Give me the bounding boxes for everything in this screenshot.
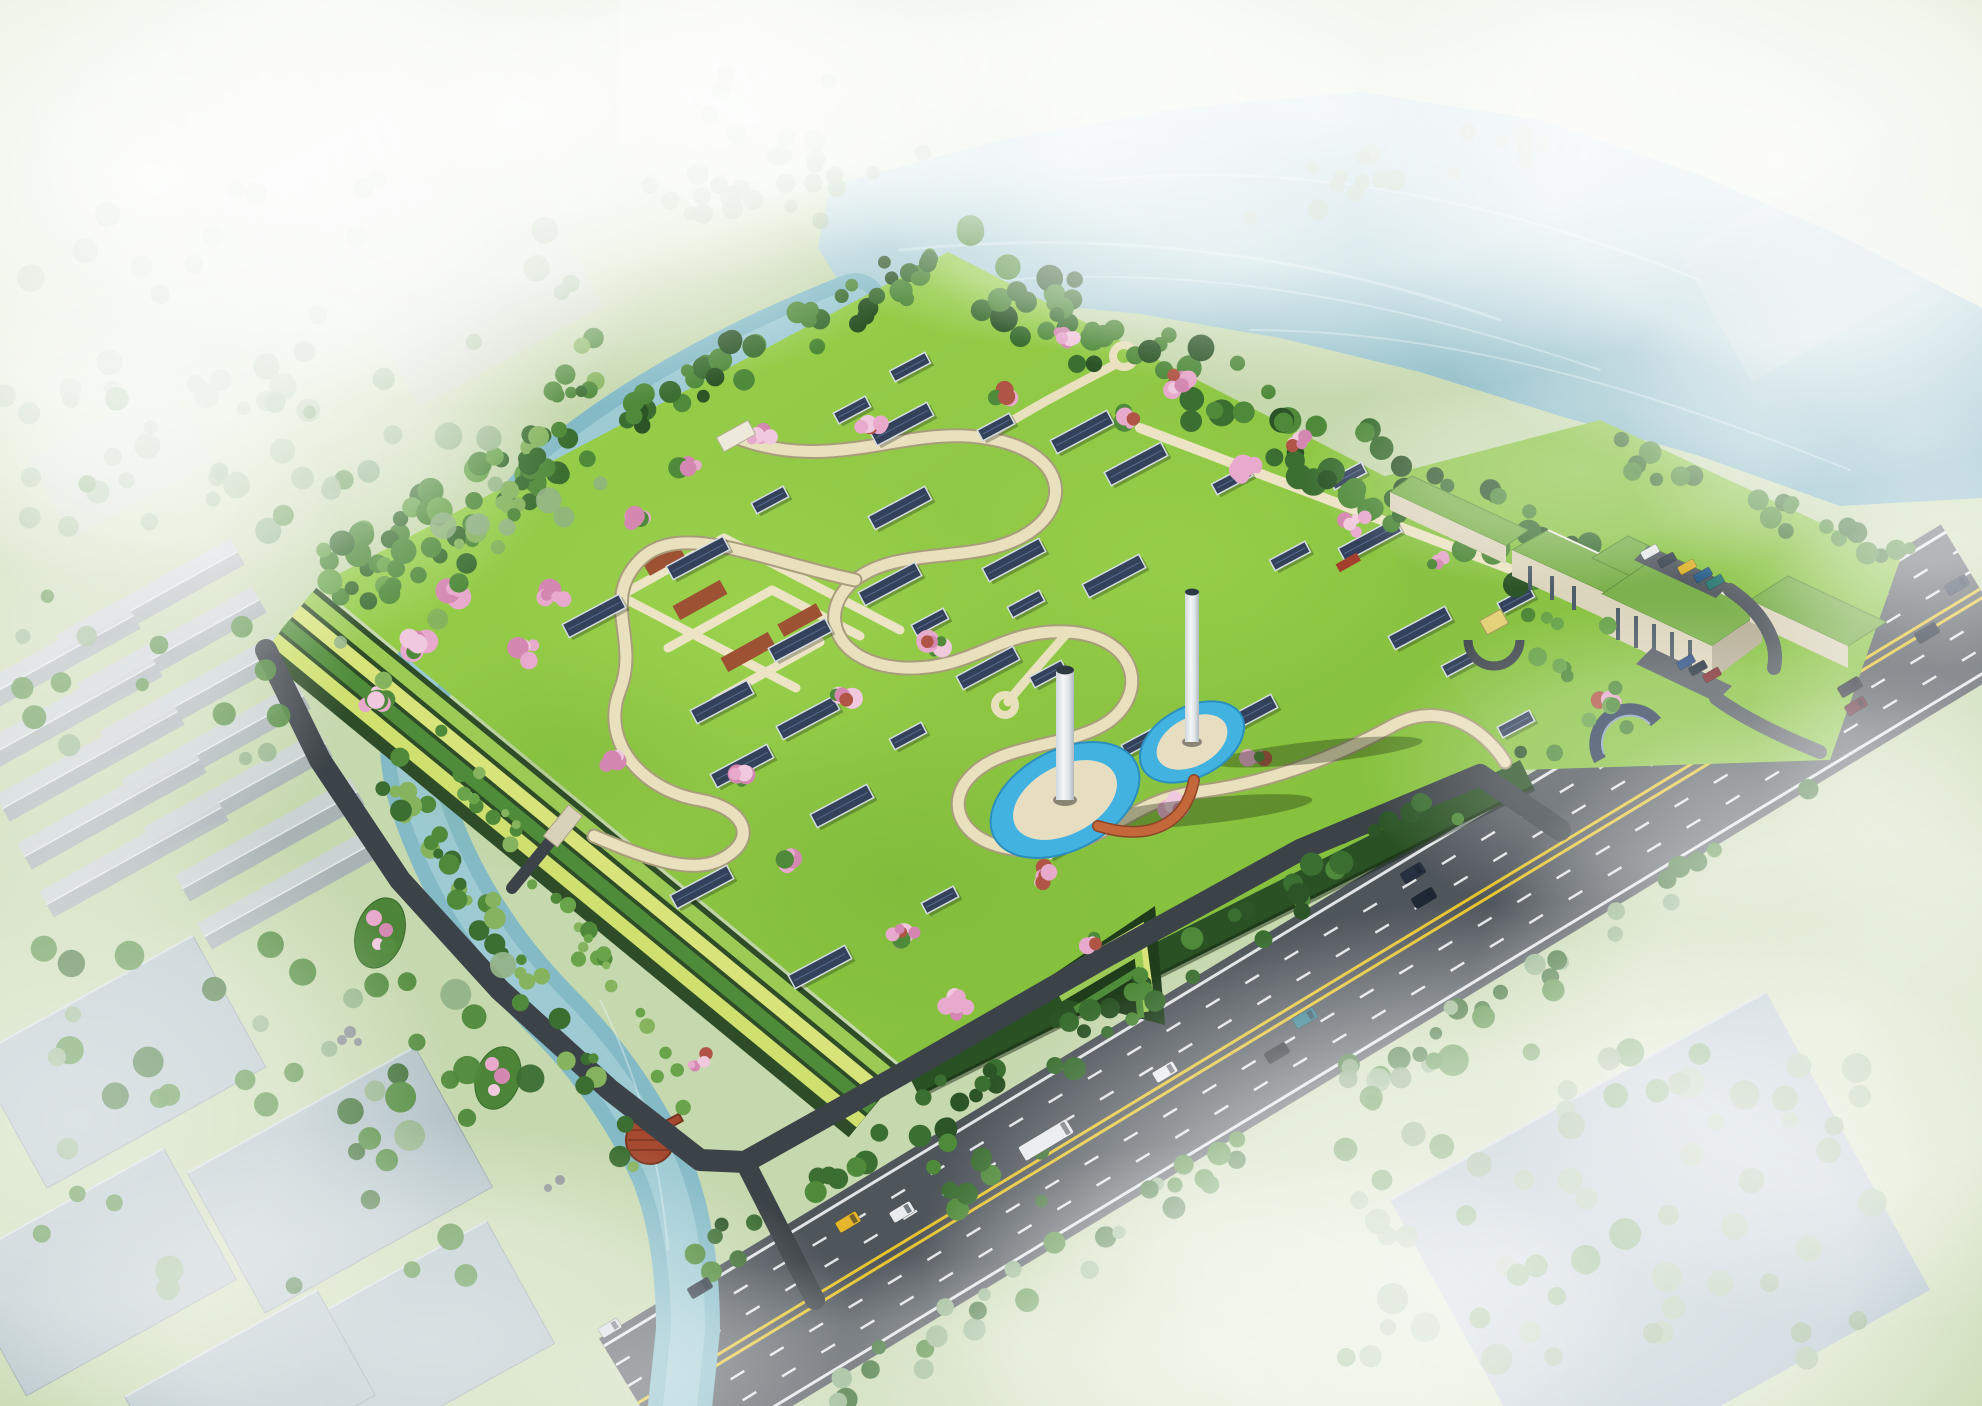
tree [512,994,529,1011]
tree [512,820,521,829]
tree [454,878,467,891]
tree [375,781,390,796]
tree [651,1070,664,1083]
island-blossom [494,1068,510,1084]
tree [527,879,537,889]
tree [435,725,447,737]
tree [440,979,471,1010]
blossom [1036,880,1045,889]
tree [571,952,586,967]
blossom [776,850,794,868]
scene-svg [0,0,1982,1406]
tree [1329,851,1353,875]
tree [847,1157,867,1177]
blossom [873,416,889,432]
tree [636,1008,646,1018]
tree [468,793,479,804]
tree [424,835,439,850]
tree [575,1076,594,1095]
tree [473,767,485,779]
blossom [854,420,868,434]
tree [1206,402,1223,419]
blossom [1236,463,1247,474]
tree [605,980,618,993]
blossom [908,927,920,939]
tree [617,1116,634,1133]
island-blossom [485,1057,499,1071]
stack-cylinder [1185,592,1199,742]
blossom [937,997,954,1014]
tree [484,933,505,954]
tree [602,961,610,969]
tree [485,892,501,908]
tree [390,748,409,767]
blossom [699,1056,711,1068]
tree [484,908,506,930]
stack-opening [1185,589,1199,596]
tree [389,785,401,797]
blossom [625,506,645,526]
tree [557,1052,576,1071]
tree [1180,410,1202,432]
blossom [551,591,562,602]
tree [915,1089,931,1105]
tree [453,1056,481,1084]
tree [516,954,527,965]
tree [533,968,550,985]
tree [805,1181,827,1203]
blossom [729,768,741,780]
tree [447,889,468,910]
tree [578,942,589,953]
tree [502,836,518,852]
tree [551,893,562,904]
tree [1228,908,1242,922]
blossom [408,634,427,653]
blossom [520,652,538,670]
tree [975,1076,991,1092]
stack-cylinder [1056,670,1074,800]
tree [950,1093,969,1112]
blossom [680,460,697,477]
tree [390,800,412,822]
tree [1233,401,1255,423]
tree [639,1018,655,1034]
tree [549,1008,571,1030]
tree [1265,448,1283,466]
aerial-rendering-canvas [0,0,1982,1406]
tree [828,1168,849,1189]
blossom [1089,937,1102,950]
tree [938,1117,957,1136]
tree [588,1053,598,1063]
tree [1287,883,1309,905]
tree [433,849,443,859]
tree [1300,853,1323,876]
blossom [688,1061,696,1069]
tree [697,390,710,403]
blossom [839,693,853,707]
stack-opening [1056,666,1074,675]
tree [560,897,576,913]
blossom [952,990,966,1004]
tree [584,934,593,943]
tree [594,476,608,490]
tree [501,809,509,817]
tree [659,1047,671,1059]
tree [675,1100,690,1115]
island-blossom [488,1084,500,1096]
tree [1294,903,1311,920]
blossom [921,635,934,648]
tree [1181,927,1204,950]
tree [490,952,516,978]
blossom [895,924,905,934]
blossom [541,589,553,601]
tree [579,450,596,467]
tree [670,1063,684,1077]
tree [935,1074,947,1086]
tree [516,1064,544,1092]
tree [594,1074,606,1086]
tree [1274,413,1293,432]
tree [909,1125,932,1148]
tree [375,672,393,690]
tree [453,767,468,782]
tree [870,1124,888,1142]
blossom [998,388,1015,405]
blossom [602,750,621,769]
tree [486,810,501,825]
tree [625,407,642,424]
blossom [367,691,385,709]
tree [462,1004,487,1029]
tree [519,973,535,989]
tree [596,946,611,961]
blossom [1127,412,1140,425]
blossom [1041,864,1058,881]
blossom [763,429,778,444]
